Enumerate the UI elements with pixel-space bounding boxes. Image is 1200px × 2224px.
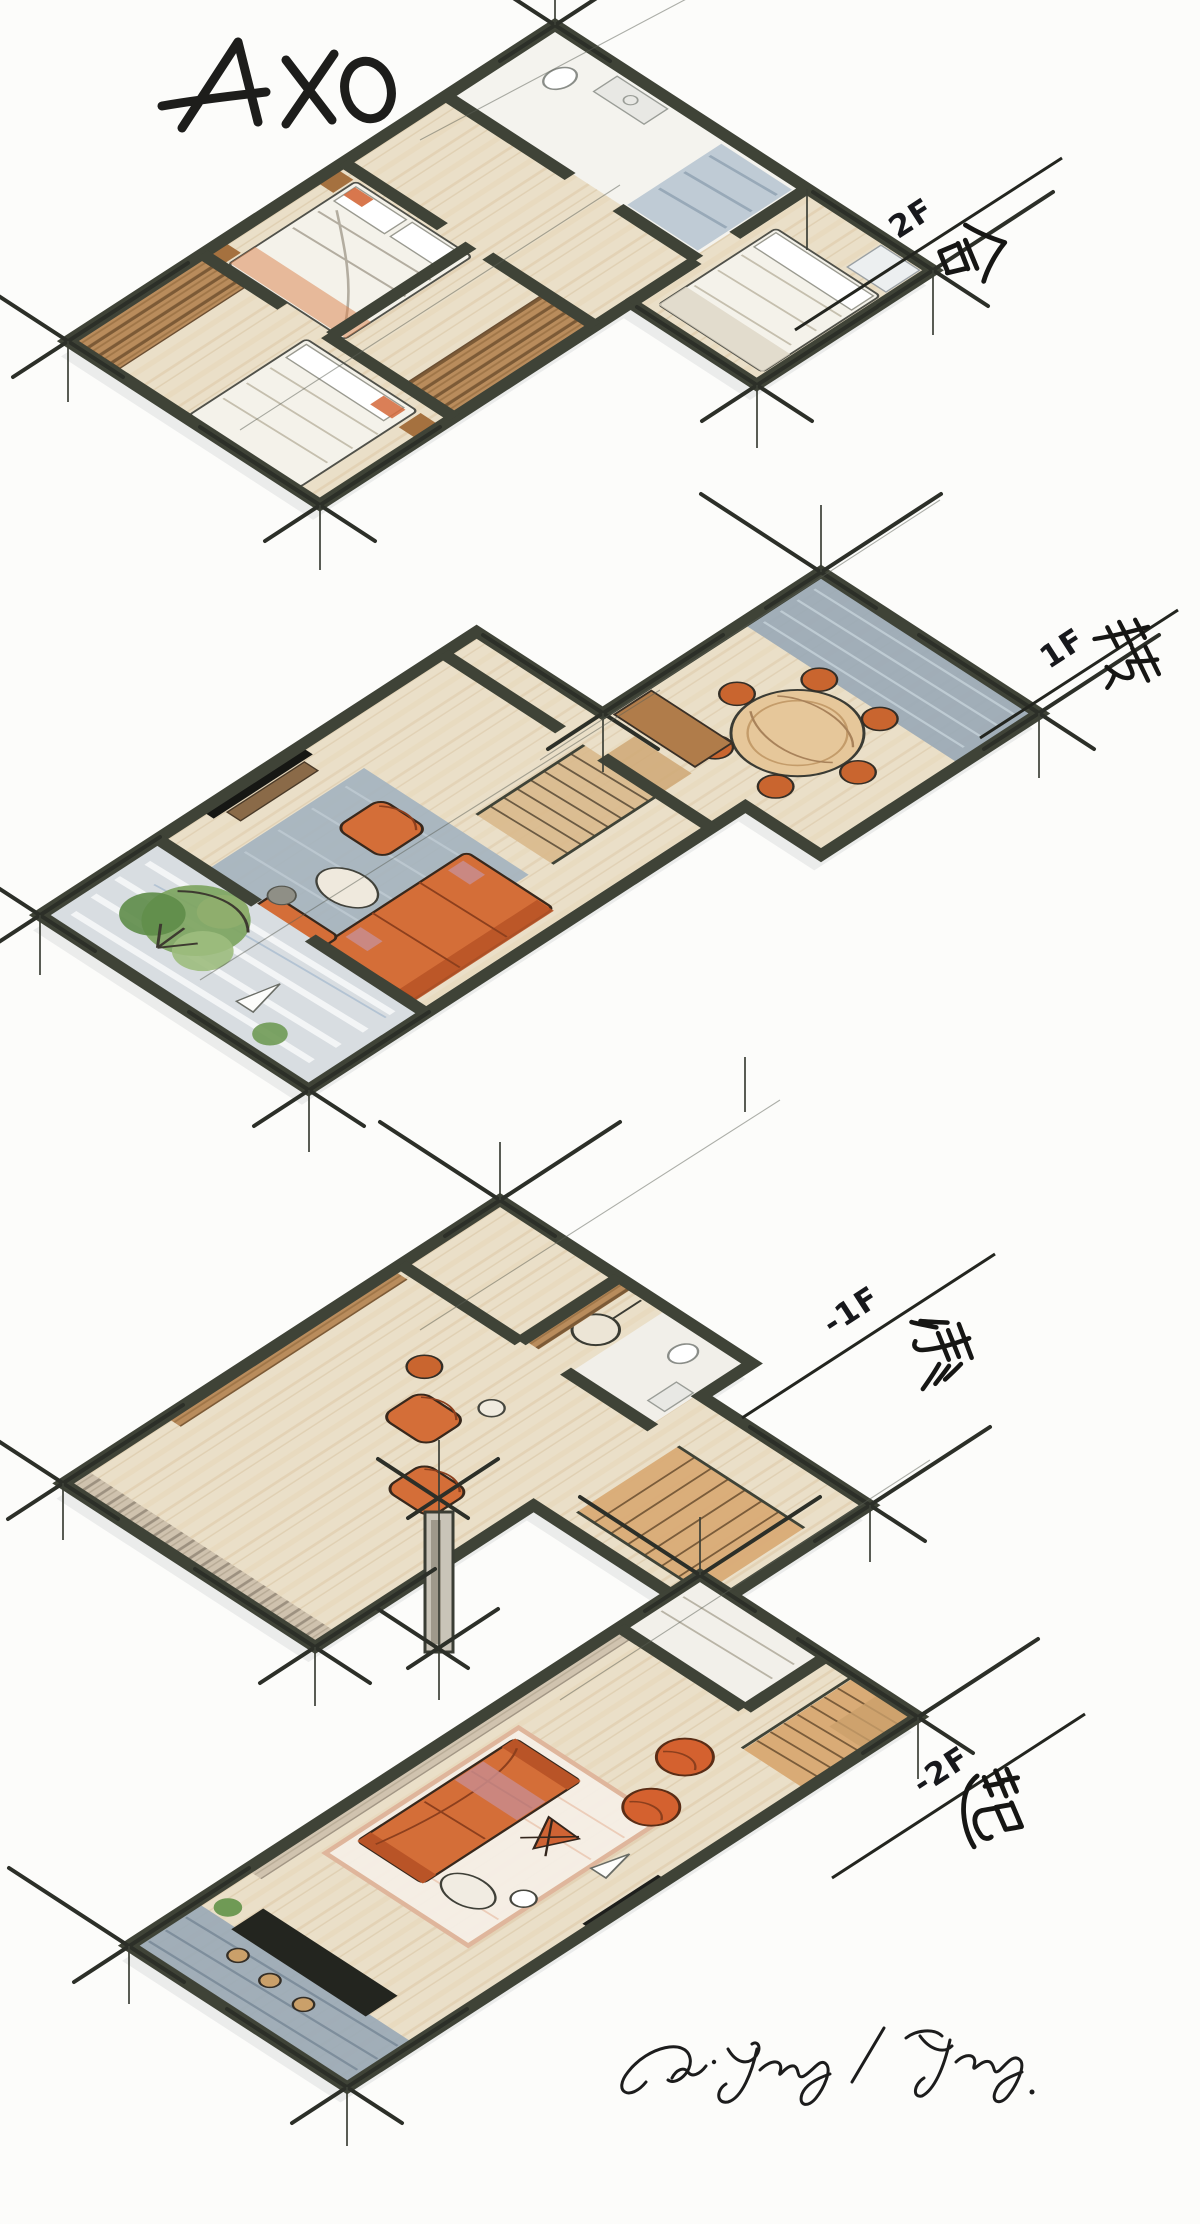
floor-plan-2f [53, 25, 942, 602]
floor-plan-1f [25, 490, 1048, 1154]
floor-level-label-1f: 1F [1034, 621, 1092, 676]
axo-sketch-canvas: 2F 1F -1F -2F [0, 0, 1200, 2224]
concept-character-b1f [904, 1308, 979, 1389]
floor-plan-b2f [114, 1575, 927, 2103]
leader-line-1f [980, 610, 1178, 738]
concept-character-b2f [953, 1765, 1032, 1847]
axo-sketch-page: 2F 1F -1F -2F [0, 0, 1200, 2224]
drawing-title-axo [162, 42, 397, 128]
designer-signature [622, 2028, 1035, 2104]
leader-line-b1f [742, 1254, 995, 1418]
